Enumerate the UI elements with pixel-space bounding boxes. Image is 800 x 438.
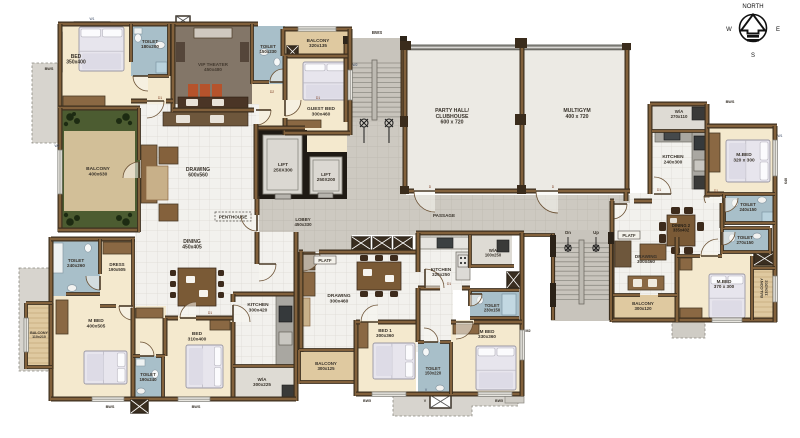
svg-text:BW5: BW5 [363,399,371,403]
svg-text:TOILET180x200: TOILET180x200 [141,39,159,49]
svg-text:PLATF: PLATF [318,258,332,263]
svg-text:D1: D1 [208,311,212,315]
svg-text:TOILET190x240: TOILET190x240 [139,372,157,382]
svg-text:DRAWING300x460: DRAWING300x460 [635,254,658,264]
svg-text:KITCHEN240x300: KITCHEN240x300 [662,154,684,165]
svg-text:DRESS190x505: DRESS190x505 [108,262,126,272]
svg-text:TOILET240x260: TOILET240x260 [67,258,85,268]
svg-text:TOILET150x230: TOILET150x230 [259,44,277,54]
svg-text:BWS: BWS [45,67,54,71]
svg-text:BALCONY400x630: BALCONY400x630 [86,166,111,177]
svg-text:M BED330x360: M BED330x360 [478,329,496,339]
svg-text:TOILET230x150: TOILET230x150 [484,303,501,313]
svg-text:DRAWING600x560: DRAWING600x560 [186,167,210,179]
svg-text:M2: M2 [525,329,530,333]
svg-text:NORTH: NORTH [742,4,763,10]
svg-text:W: W [726,27,732,33]
svg-text:BWS: BWS [106,405,115,409]
svg-text:TOILET240x150: TOILET240x150 [739,202,757,212]
svg-text:DRAWING300x460: DRAWING300x460 [327,293,350,304]
svg-text:TOILET270x150: TOILET270x150 [736,235,754,245]
svg-text:S: S [751,53,755,59]
svg-text:KITCHEN320x250: KITCHEN320x250 [431,267,452,277]
svg-text:D1: D1 [158,96,162,100]
svg-text:D1: D1 [657,188,661,192]
svg-text:BALCONY300x120: BALCONY300x120 [632,301,654,311]
svg-text:BALCONY320x135: BALCONY320x135 [307,38,330,48]
svg-text:BALCONY110x202: BALCONY110x202 [759,278,768,298]
svg-text:BWS: BWS [192,405,201,409]
svg-text:Up: Up [593,230,599,235]
svg-text:D2: D2 [270,90,274,94]
svg-text:BWS: BWS [372,30,382,35]
svg-text:E: E [776,27,780,33]
svg-text:W2: W2 [352,63,357,67]
svg-text:BALCONY300x125: BALCONY300x125 [315,361,337,371]
svg-text:D1: D1 [714,189,718,193]
svg-text:PENTHOUSE: PENTHOUSE [219,215,248,220]
svg-text:BW5: BW5 [495,399,503,403]
svg-text:M BED400x505: M BED400x505 [87,318,106,329]
svg-text:D1: D1 [447,282,451,286]
svg-text:D1: D1 [316,96,320,100]
svg-text:Dn: Dn [565,230,571,235]
svg-text:PLATF: PLATF [622,233,636,238]
svg-text:BWS: BWS [726,100,735,104]
svg-text:TOILET150x220: TOILET150x220 [425,366,442,376]
svg-text:MULTIGYM400 x 720: MULTIGYM400 x 720 [563,108,590,120]
svg-text:LOBBY450x330: LOBBY450x330 [294,217,312,227]
svg-text:DINING450x405: DINING450x405 [182,239,202,251]
svg-text:BED 1300x360: BED 1300x360 [376,328,394,338]
svg-text:PASSAGE: PASSAGE [433,213,455,218]
svg-text:W1: W1 [777,134,782,138]
svg-text:W2: W2 [54,144,59,148]
svg-text:BALCONY110x210: BALCONY110x210 [30,331,48,339]
svg-text:640: 640 [784,178,788,184]
svg-text:DINING 2335x402: DINING 2335x402 [672,223,691,233]
svg-text:W1: W1 [89,17,94,21]
svg-text:KITCHEN300x420: KITCHEN300x420 [247,302,269,313]
